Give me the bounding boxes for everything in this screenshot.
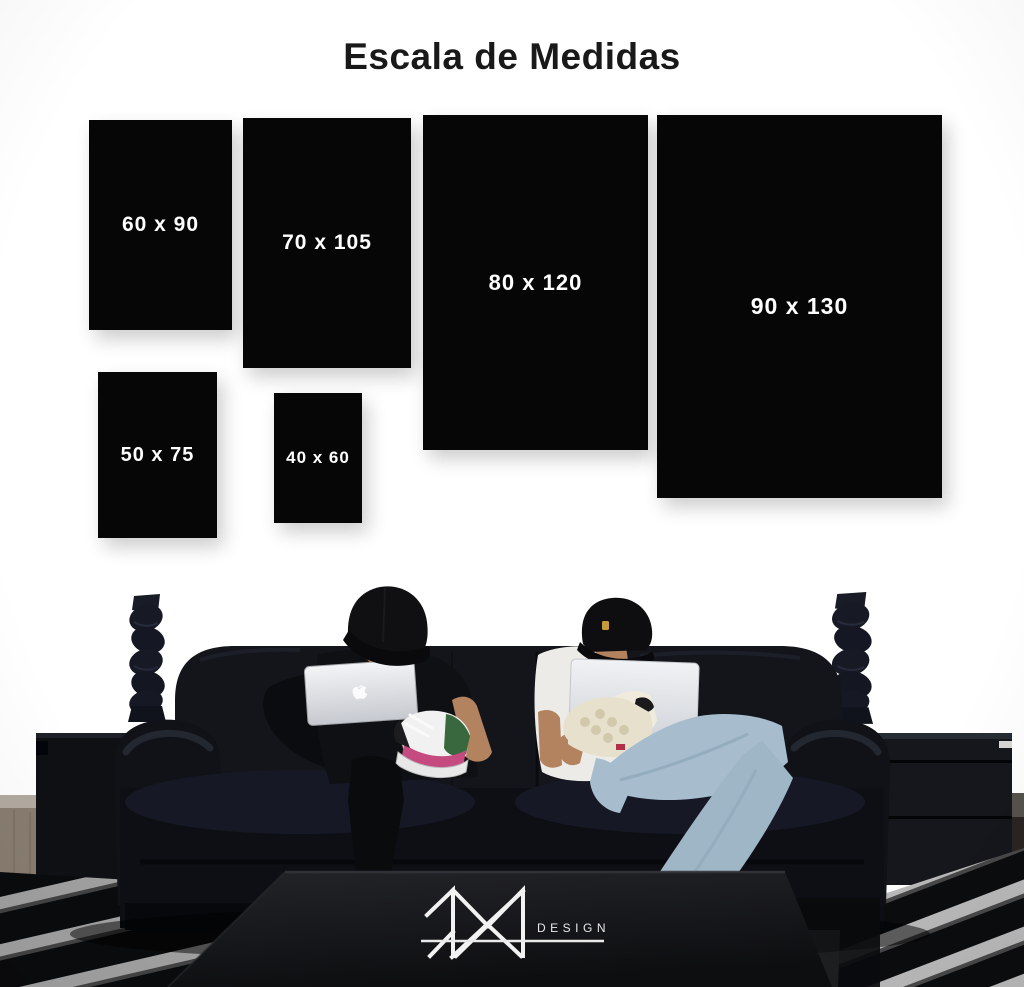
coffee-table — [168, 872, 832, 987]
logo-design-text: DESIGN — [537, 921, 610, 935]
size-scale-infographic: Escala de Medidas 60 x 90 70 x 105 80 x … — [0, 0, 1024, 987]
cap-shield-logo — [602, 621, 609, 630]
lifestyle-photo: DESIGN — [0, 0, 1024, 987]
man-right-cap — [577, 598, 654, 669]
man-left-laptop — [304, 659, 418, 726]
candlestick-left — [126, 594, 168, 722]
man-left-sneaker — [394, 711, 470, 778]
man-right-arm — [538, 710, 562, 768]
